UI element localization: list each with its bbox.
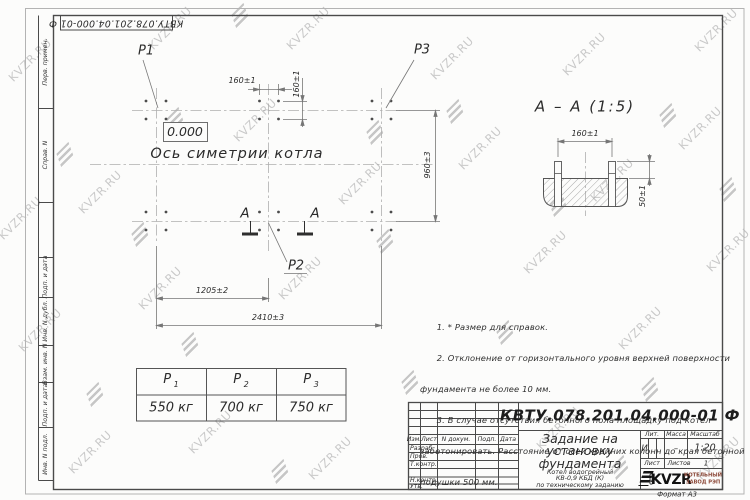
dim-full-span: 2410±3 [252,314,284,322]
col-header-podp: Подп. [478,436,497,442]
margin-label-podp-data-2: Подп. и дата [43,384,49,427]
load-point-p3-label: P3 [414,44,430,57]
dim-section-width: 160±1 [571,130,598,138]
sig-row-tkontr: Т.контр. [410,461,437,467]
load-table-value-p2: 700 кг [219,402,263,415]
plan-centerlines [90,84,433,252]
note-line: фундамента не более 10 мм. [420,384,745,394]
load-table-header-p3: P 3 [303,373,319,389]
dim-plan-height: 960±3 [424,151,432,178]
note-line: 2. Отклонение от горизонтального уровня … [420,353,745,363]
sheets-label: Листов [667,460,690,466]
load-point-p2-label: P2 [288,260,304,273]
load-table-value-p3: 750 кг [289,402,333,415]
load-table-header-p1: P 1 [163,373,179,389]
sig-row-razrab: Разраб. [410,445,434,451]
scale-label: Масштаб [690,431,719,437]
plan-section-marks [242,221,313,234]
margin-label-inv-dubl: Инв. N дубл. [43,300,49,341]
load-table-value-p1: 550 кг [149,402,193,415]
sig-row-prov: Пров. [410,453,428,459]
section-letter-left: А [240,207,249,221]
doc-subtitle-line: по техническому заданию [536,482,624,488]
col-header-ndokum: N докум. [442,436,471,442]
margin-label-podp-data-1: Подп. и дата [43,256,49,299]
margin-label-inv-podl: Инв. N подл. [43,433,49,475]
mass-label: Масса [666,431,686,437]
format-label: Формат А3 [657,491,697,498]
logo-caption-line: ЗАВОД РЭП [686,480,720,485]
title-block-doc-number: КВТУ.078.201.04.000-01 Ф [500,409,740,424]
sig-row-utv: Утв. [410,484,423,490]
elevation-value: 0.000 [167,125,203,138]
mass-value: – [674,444,678,453]
plan-dimensions [143,60,440,329]
col-header-list: Лист [421,436,437,442]
drawing-sheet: KVZR.RUKVZR.RUKVZR.RUKVZR.RUKVZR.RUKVZR.… [0,0,750,500]
scale-value: 1:20 [694,443,715,453]
sheet-label: Лист [644,460,660,466]
section-letter-right: А [310,207,319,221]
dim-section-height: 50±1 [639,185,647,207]
lit-value: И [641,444,647,453]
margin-label-sprav-n: Справ. N [43,141,49,170]
dim-bolt-spacing-y: 160±1 [293,70,301,97]
note-line: 1. * Размер для справок. [420,322,745,332]
load-table-header-p2: P 2 [233,373,249,389]
dim-half-span: 1205±2 [196,287,228,295]
margin-label-vzam-inv: Взам. инв. N [43,344,49,385]
col-header-izm: Изм. [407,436,422,442]
col-header-data: Дата [500,436,516,442]
sheets-value: 1 [704,460,708,467]
top-stamp-doc-number: КВТУ.078.201.04.000-01 Ф [49,18,184,27]
lit-label: Лит. [645,431,659,437]
dim-bolt-spacing-x: 160±1 [228,77,255,85]
load-point-p1-label: P1 [138,45,154,58]
margin-label-perv-primen: Перв. примен. [43,38,49,85]
section-view-title: А – А (1:5) [535,100,635,115]
logo-caption-line: КОТЕЛЬНЫЙ [684,473,722,478]
boiler-axis-label: Ось симетрии котла [150,147,323,162]
